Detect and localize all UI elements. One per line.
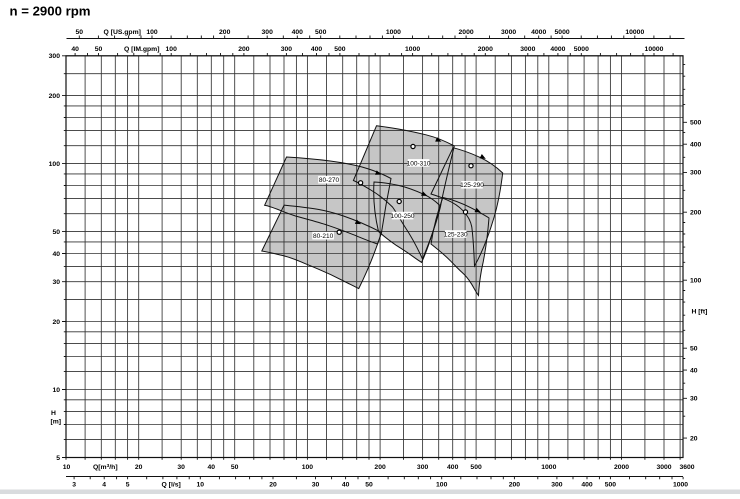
svg-text:3000: 3000 bbox=[520, 46, 535, 53]
svg-text:300: 300 bbox=[690, 170, 702, 177]
svg-text:400: 400 bbox=[311, 46, 323, 53]
svg-text:300: 300 bbox=[262, 29, 274, 36]
svg-text:20: 20 bbox=[690, 435, 698, 442]
svg-text:200: 200 bbox=[374, 464, 386, 471]
svg-text:200: 200 bbox=[690, 210, 702, 217]
svg-text:3000: 3000 bbox=[656, 464, 671, 471]
svg-text:40: 40 bbox=[342, 481, 350, 488]
svg-text:300: 300 bbox=[281, 46, 293, 53]
svg-text:3000: 3000 bbox=[501, 29, 516, 36]
svg-text:4000: 4000 bbox=[550, 46, 565, 53]
svg-text:400: 400 bbox=[447, 464, 459, 471]
svg-text:Q [US.gpm]: Q [US.gpm] bbox=[104, 29, 141, 36]
svg-text:200: 200 bbox=[509, 481, 521, 488]
svg-text:500: 500 bbox=[605, 481, 617, 488]
svg-text:1000: 1000 bbox=[541, 464, 556, 471]
svg-text:100: 100 bbox=[49, 161, 61, 168]
svg-text:1000: 1000 bbox=[405, 46, 420, 53]
svg-text:100: 100 bbox=[146, 29, 158, 36]
svg-text:2000: 2000 bbox=[459, 29, 474, 36]
svg-text:125-290: 125-290 bbox=[460, 182, 484, 189]
svg-text:20: 20 bbox=[269, 481, 277, 488]
svg-text:5000: 5000 bbox=[555, 29, 570, 36]
svg-text:300: 300 bbox=[551, 481, 563, 488]
svg-text:Q [l/s]: Q [l/s] bbox=[162, 481, 181, 488]
svg-text:H: H bbox=[51, 410, 56, 417]
svg-text:4: 4 bbox=[102, 481, 106, 488]
svg-text:500: 500 bbox=[334, 46, 346, 53]
svg-text:100-250: 100-250 bbox=[391, 213, 415, 220]
svg-text:Q [IM.gpm]: Q [IM.gpm] bbox=[124, 46, 160, 53]
svg-text:50: 50 bbox=[76, 29, 84, 36]
svg-text:80-210: 80-210 bbox=[313, 233, 334, 240]
svg-text:40: 40 bbox=[52, 251, 60, 258]
svg-text:100-310: 100-310 bbox=[407, 160, 431, 167]
svg-text:5: 5 bbox=[56, 455, 60, 462]
svg-text:10: 10 bbox=[52, 387, 60, 394]
svg-text:100: 100 bbox=[436, 481, 448, 488]
svg-text:400: 400 bbox=[690, 142, 702, 149]
svg-text:100: 100 bbox=[166, 46, 178, 53]
svg-text:Q[m3/h]: Q[m3/h] bbox=[93, 463, 118, 471]
svg-text:200: 200 bbox=[219, 29, 231, 36]
svg-text:10000: 10000 bbox=[645, 46, 664, 53]
svg-text:30: 30 bbox=[312, 481, 320, 488]
svg-text:1000: 1000 bbox=[673, 481, 688, 488]
svg-text:500: 500 bbox=[470, 464, 482, 471]
svg-text:10000: 10000 bbox=[625, 29, 644, 36]
svg-text:40: 40 bbox=[71, 46, 79, 53]
svg-text:400: 400 bbox=[581, 481, 593, 488]
svg-text:300: 300 bbox=[49, 53, 61, 60]
svg-text:4000: 4000 bbox=[531, 29, 546, 36]
svg-text:n = 2900 rpm: n = 2900 rpm bbox=[10, 3, 91, 18]
svg-text:1000: 1000 bbox=[386, 29, 401, 36]
svg-text:50: 50 bbox=[95, 46, 103, 53]
svg-text:100: 100 bbox=[690, 278, 702, 285]
svg-text:10: 10 bbox=[197, 481, 205, 488]
svg-text:500: 500 bbox=[315, 29, 327, 36]
svg-text:3: 3 bbox=[72, 481, 76, 488]
svg-text:100: 100 bbox=[302, 464, 314, 471]
svg-text:20: 20 bbox=[52, 319, 60, 326]
svg-text:2000: 2000 bbox=[478, 46, 493, 53]
svg-text:10: 10 bbox=[63, 464, 71, 471]
svg-text:50: 50 bbox=[52, 229, 60, 236]
svg-text:5: 5 bbox=[126, 481, 130, 488]
svg-text:50: 50 bbox=[690, 346, 698, 353]
svg-text:300: 300 bbox=[417, 464, 429, 471]
svg-text:[m]: [m] bbox=[51, 418, 62, 425]
svg-text:30: 30 bbox=[690, 396, 698, 403]
svg-text:2000: 2000 bbox=[614, 464, 629, 471]
svg-text:30: 30 bbox=[52, 279, 60, 286]
svg-text:40: 40 bbox=[208, 464, 216, 471]
svg-text:40: 40 bbox=[690, 367, 698, 374]
svg-text:50: 50 bbox=[231, 464, 239, 471]
svg-text:200: 200 bbox=[49, 93, 61, 100]
svg-text:50: 50 bbox=[365, 481, 373, 488]
svg-text:30: 30 bbox=[177, 464, 185, 471]
svg-text:200: 200 bbox=[238, 46, 250, 53]
svg-text:20: 20 bbox=[135, 464, 143, 471]
svg-text:400: 400 bbox=[292, 29, 304, 36]
svg-text:5000: 5000 bbox=[574, 46, 589, 53]
svg-text:500: 500 bbox=[690, 120, 702, 127]
svg-text:3600: 3600 bbox=[679, 464, 694, 471]
svg-text:125-230: 125-230 bbox=[444, 231, 468, 238]
svg-text:80-270: 80-270 bbox=[319, 177, 340, 184]
svg-text:H [ft]: H [ft] bbox=[692, 309, 708, 316]
